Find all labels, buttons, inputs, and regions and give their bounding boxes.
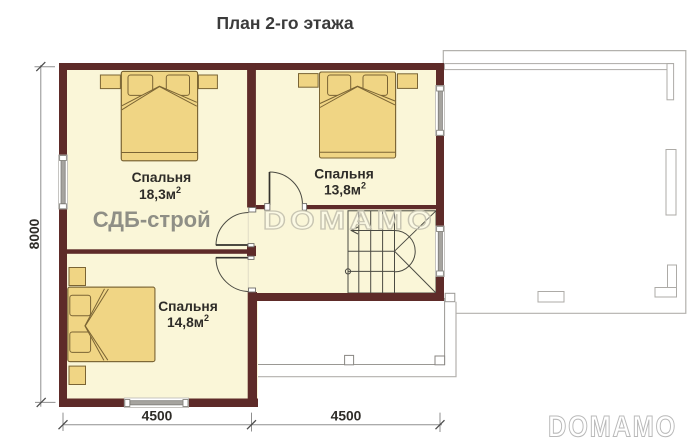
- svg-text:Спальня: Спальня: [314, 167, 374, 182]
- svg-text:18,3м2: 18,3м2: [139, 185, 181, 202]
- svg-text:Спальня: Спальня: [132, 170, 192, 185]
- svg-text:DOMAMO: DOMAMO: [263, 207, 436, 235]
- svg-text:14,8м2: 14,8м2: [167, 313, 209, 330]
- svg-text:4500: 4500: [331, 409, 362, 424]
- svg-text:СДБ-строй: СДБ-строй: [93, 207, 211, 232]
- svg-text:Спальня: Спальня: [158, 299, 218, 314]
- svg-text:8000: 8000: [27, 218, 42, 249]
- svg-text:План 2-го этажа: План 2-го этажа: [216, 13, 353, 33]
- svg-text:4500: 4500: [142, 409, 173, 424]
- svg-text:DOMAMO: DOMAMO: [548, 411, 677, 441]
- svg-text:13,8м2: 13,8м2: [324, 180, 366, 197]
